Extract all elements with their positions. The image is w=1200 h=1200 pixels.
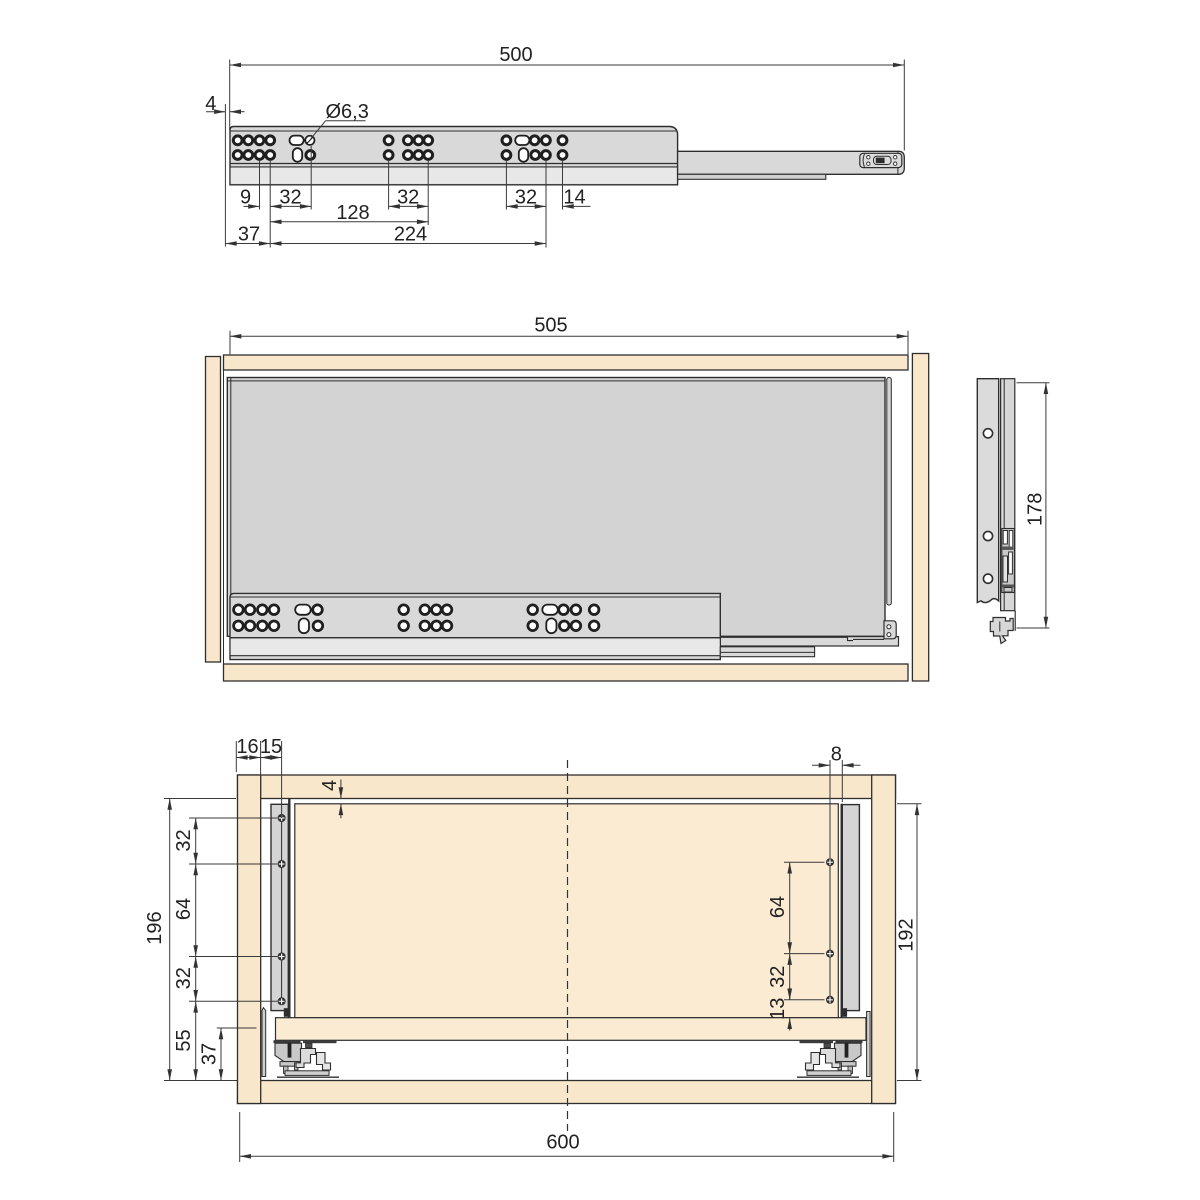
svg-text:4: 4 (319, 780, 341, 791)
svg-text:32: 32 (397, 187, 419, 209)
svg-text:192: 192 (896, 918, 918, 951)
svg-text:64: 64 (173, 898, 195, 920)
svg-text:37: 37 (238, 224, 260, 246)
svg-text:32: 32 (767, 966, 789, 988)
svg-text:196: 196 (144, 911, 166, 944)
svg-text:37: 37 (199, 1043, 221, 1065)
svg-text:500: 500 (499, 44, 532, 66)
svg-text:600: 600 (546, 1132, 579, 1154)
svg-text:32: 32 (279, 187, 301, 209)
svg-text:15: 15 (260, 736, 282, 758)
svg-text:128: 128 (336, 202, 369, 224)
svg-text:32: 32 (173, 967, 195, 989)
svg-text:4: 4 (205, 93, 216, 115)
svg-text:8: 8 (831, 743, 842, 765)
svg-text:14: 14 (563, 187, 585, 209)
svg-text:Ø6,3: Ø6,3 (326, 101, 369, 123)
svg-text:55: 55 (173, 1029, 195, 1051)
svg-text:64: 64 (767, 896, 789, 918)
svg-text:505: 505 (534, 315, 567, 337)
svg-text:32: 32 (173, 829, 195, 851)
svg-text:9: 9 (240, 187, 251, 209)
svg-text:13: 13 (767, 998, 789, 1020)
svg-text:32: 32 (515, 187, 537, 209)
svg-text:224: 224 (394, 224, 427, 246)
svg-text:178: 178 (1025, 493, 1047, 526)
svg-text:16: 16 (236, 736, 258, 758)
